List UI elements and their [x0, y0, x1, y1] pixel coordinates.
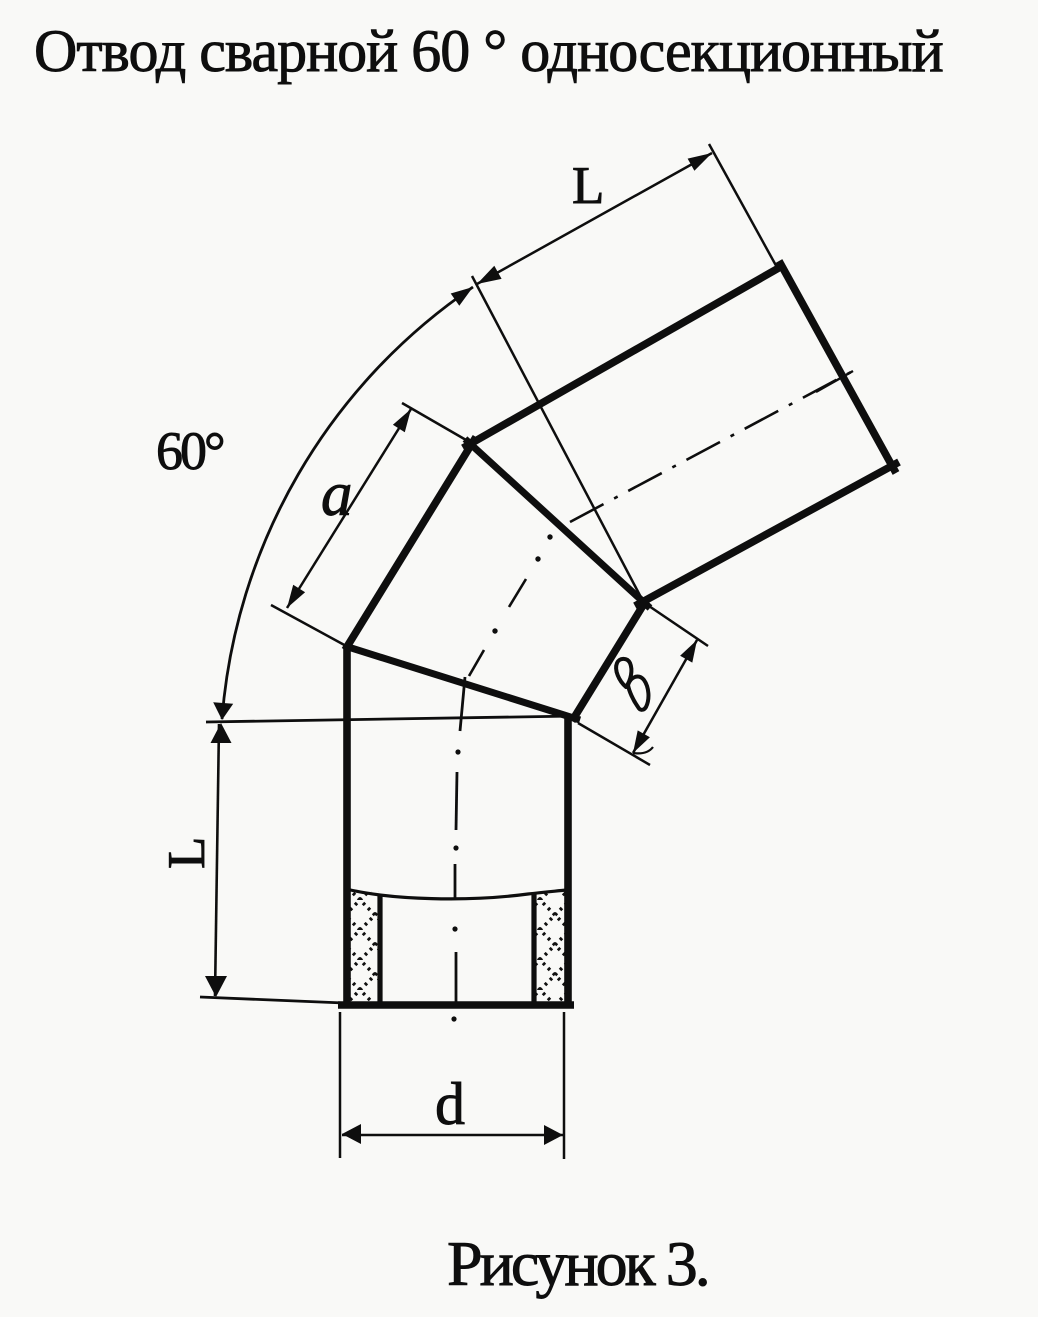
svg-text:L: L	[158, 837, 216, 869]
svg-text:Отвод сварной 60 ° односекцион: Отвод сварной 60 ° односекционный	[34, 18, 943, 84]
svg-text:a: a	[321, 459, 353, 529]
svg-text:L: L	[572, 157, 604, 215]
svg-text:Рисунок 3.: Рисунок 3.	[447, 1228, 708, 1299]
svg-text:d: d	[435, 1071, 465, 1137]
svg-text:60°: 60°	[156, 421, 223, 481]
